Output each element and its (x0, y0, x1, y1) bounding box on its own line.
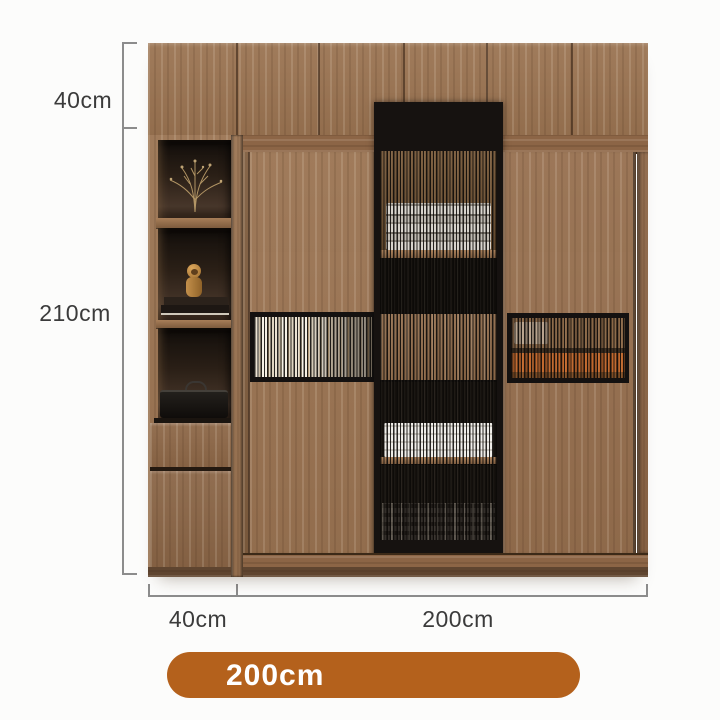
cubby-flowers (158, 140, 231, 218)
vertical-tick-bottom (122, 573, 137, 575)
shelf-edge (156, 320, 233, 328)
side-drawer-2 (150, 471, 239, 567)
top-door-divider (318, 43, 320, 135)
vertical-tick-top (122, 42, 137, 44)
sliding-door-right-wood (503, 152, 636, 553)
glass-ribs (511, 318, 625, 378)
sliding-right-frame (637, 152, 648, 553)
fluted-glass (511, 318, 625, 378)
side-drawer-1 (150, 423, 239, 467)
horizontal-tick-left (148, 584, 150, 597)
top-door-divider (571, 43, 573, 135)
glass-ribs (254, 317, 372, 377)
size-option-badge[interactable]: 200cm (167, 652, 580, 698)
horizontal-tick-right (646, 584, 648, 597)
glass-door-inner (380, 151, 497, 540)
fluted-glass (254, 317, 372, 377)
dried-flowers (162, 150, 228, 214)
product-dimension-image: 40cm 210cm 40cm 200cm 200cm (0, 0, 720, 720)
cubby-bag (158, 328, 231, 418)
side-unit-base (148, 567, 241, 577)
glass-ribs (380, 151, 497, 540)
bag (160, 390, 228, 418)
book-stack-bottom (161, 305, 229, 315)
cubby-figurine (158, 228, 231, 320)
glass-strip-left (250, 312, 376, 382)
label-top-height: 40cm (43, 87, 123, 114)
wardrobe (148, 43, 648, 577)
side-shelf-unit (148, 135, 241, 577)
vertical-tick-middle (122, 127, 137, 129)
label-side-width: 40cm (158, 606, 238, 633)
sliding-door-left-wood (248, 152, 376, 553)
label-main-height: 210cm (25, 300, 125, 327)
horizontal-tick-middle (236, 584, 238, 597)
sliding-door-center-glass (374, 102, 503, 558)
horizontal-dimension-line (148, 595, 648, 597)
shelf-edge (156, 218, 233, 228)
label-main-width: 200cm (408, 606, 508, 633)
divider-column (231, 135, 243, 577)
figurine-body (186, 277, 202, 297)
plinth (243, 567, 648, 577)
top-door-divider (236, 43, 238, 135)
glass-strip-right (507, 313, 629, 383)
figurine-face (191, 269, 198, 275)
